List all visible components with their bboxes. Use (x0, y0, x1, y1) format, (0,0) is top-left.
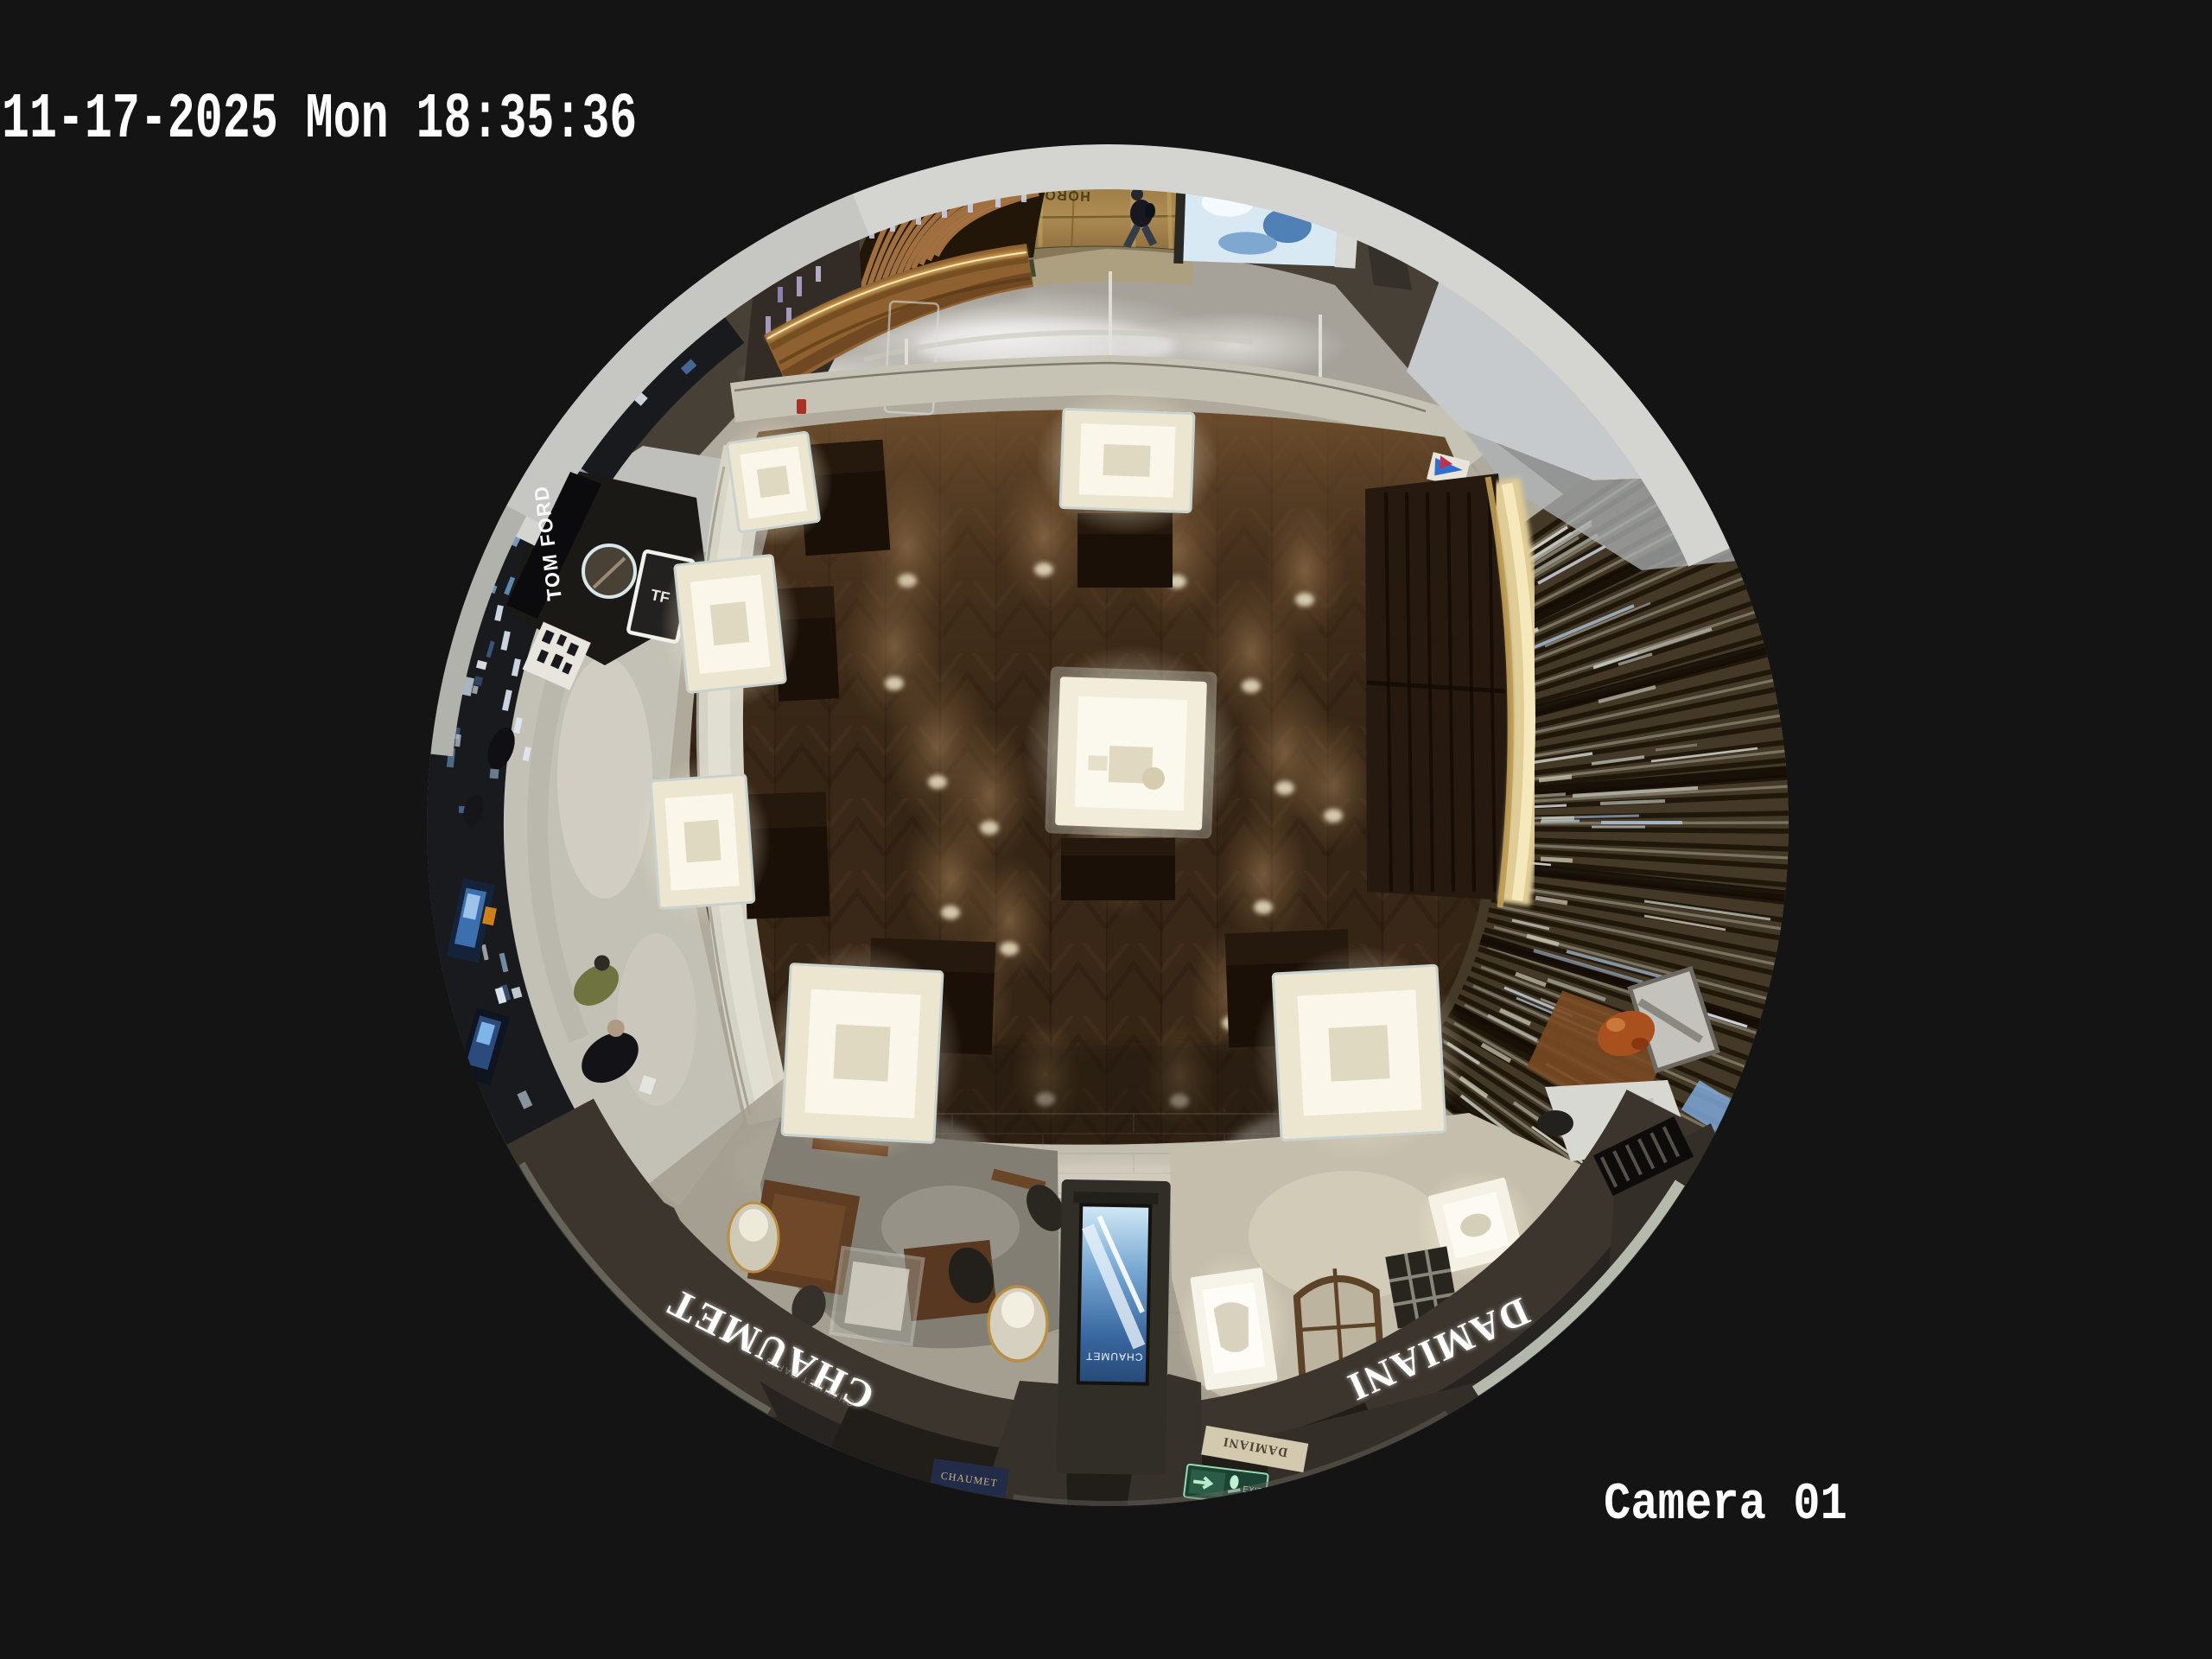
svg-text:Camera 01: Camera 01 (1604, 1475, 1847, 1534)
svg-text:CHAUMET: CHAUMET (1085, 1350, 1143, 1363)
svg-text:11-17-2025 Mon 18:35:36: 11-17-2025 Mon 18:35:36 (2, 84, 637, 156)
